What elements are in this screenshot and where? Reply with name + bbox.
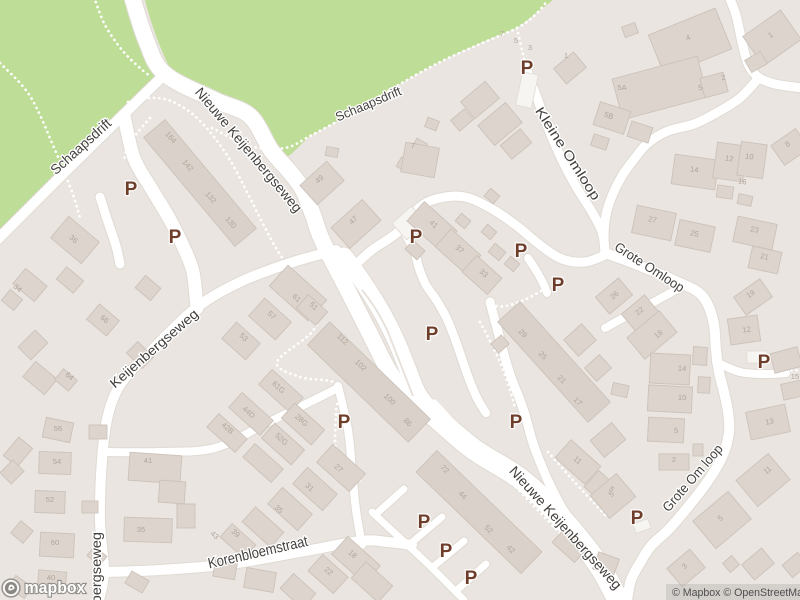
svg-text:12: 12 xyxy=(742,324,752,334)
svg-text:P: P xyxy=(426,324,439,345)
svg-text:P: P xyxy=(410,227,423,248)
svg-text:P: P xyxy=(125,179,138,200)
svg-text:5A: 5A xyxy=(617,83,627,92)
svg-text:P: P xyxy=(169,227,182,248)
svg-text:P: P xyxy=(338,412,351,433)
svg-text:12: 12 xyxy=(725,153,735,163)
svg-text:60: 60 xyxy=(51,538,59,547)
svg-text:16: 16 xyxy=(738,176,748,186)
svg-text:P: P xyxy=(758,352,771,373)
svg-text:10: 10 xyxy=(745,151,755,161)
svg-text:P: P xyxy=(418,512,431,533)
svg-text:15: 15 xyxy=(791,372,799,381)
svg-text:P: P xyxy=(552,275,565,296)
svg-text:P: P xyxy=(440,541,453,562)
svg-text:41: 41 xyxy=(144,456,152,465)
svg-text:35: 35 xyxy=(137,525,145,534)
svg-text:52: 52 xyxy=(46,495,54,504)
svg-text:10: 10 xyxy=(678,393,687,402)
svg-text:14: 14 xyxy=(690,164,700,174)
svg-text:Keijenbergseweg: Keijenbergseweg xyxy=(88,532,104,600)
svg-text:P: P xyxy=(521,58,534,79)
svg-text:P: P xyxy=(515,241,528,262)
svg-text:7: 7 xyxy=(500,29,504,38)
svg-text:7: 7 xyxy=(411,141,415,150)
svg-text:1: 1 xyxy=(564,51,568,60)
svg-text:14: 14 xyxy=(678,364,687,373)
svg-text:2: 2 xyxy=(672,455,676,464)
svg-text:54: 54 xyxy=(53,457,61,466)
svg-text:P: P xyxy=(510,412,523,433)
svg-text:56: 56 xyxy=(54,424,62,433)
svg-text:P: P xyxy=(631,508,644,529)
svg-text:mapbox: mapbox xyxy=(25,579,87,597)
svg-text:5: 5 xyxy=(514,36,518,45)
svg-text:5: 5 xyxy=(674,426,679,435)
svg-text:P: P xyxy=(465,568,478,589)
svg-text:© Mapbox © OpenStreetMap: © Mapbox © OpenStreetMap xyxy=(672,587,800,599)
svg-text:3: 3 xyxy=(528,43,532,52)
